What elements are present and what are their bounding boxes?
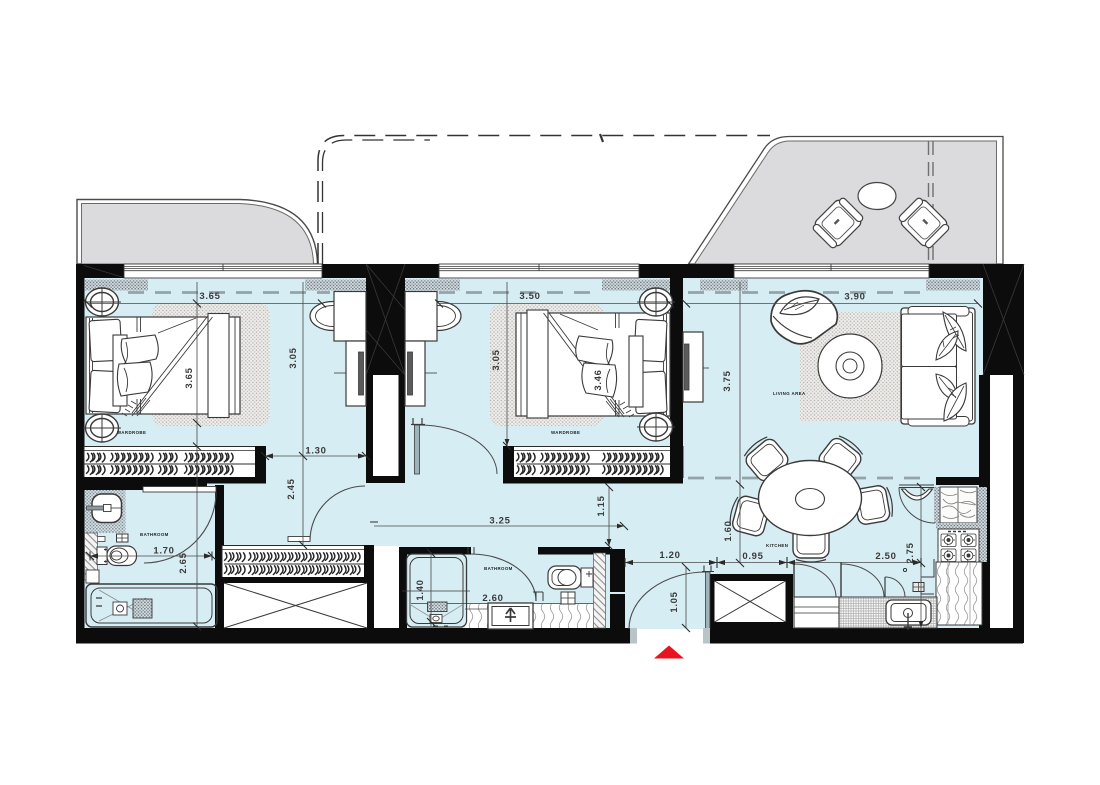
svg-text:1.05: 1.05 xyxy=(669,591,680,612)
svg-text:3.75: 3.75 xyxy=(722,370,733,391)
svg-text:1.30: 1.30 xyxy=(305,446,326,457)
svg-text:WARDROBE: WARDROBE xyxy=(117,430,146,435)
svg-text:BATHROOM: BATHROOM xyxy=(484,566,513,571)
svg-text:2.75: 2.75 xyxy=(905,542,916,563)
svg-text:BATHROOM: BATHROOM xyxy=(140,532,169,537)
svg-text:3.50: 3.50 xyxy=(519,291,540,302)
svg-text:0.95: 0.95 xyxy=(742,551,763,562)
svg-text:3.05: 3.05 xyxy=(491,349,502,370)
svg-text:1.60: 1.60 xyxy=(723,520,734,541)
svg-text:WARDROBE: WARDROBE xyxy=(551,430,580,435)
svg-text:3.25: 3.25 xyxy=(489,516,510,527)
svg-text:1.20: 1.20 xyxy=(659,550,680,561)
svg-text:3.05: 3.05 xyxy=(288,347,299,368)
svg-text:1.70: 1.70 xyxy=(153,546,174,557)
svg-text:3.46: 3.46 xyxy=(593,369,604,390)
svg-text:2.45: 2.45 xyxy=(286,478,297,499)
svg-text:2.65: 2.65 xyxy=(178,552,189,573)
svg-text:KITCHEN: KITCHEN xyxy=(766,543,788,548)
svg-text:1.40: 1.40 xyxy=(415,579,426,600)
svg-text:3.90: 3.90 xyxy=(844,292,865,303)
svg-text:2.50: 2.50 xyxy=(875,551,896,562)
svg-text:3.65: 3.65 xyxy=(199,291,220,302)
svg-text:2.60: 2.60 xyxy=(482,593,503,604)
svg-text:3.65: 3.65 xyxy=(184,367,195,388)
svg-text:1.15: 1.15 xyxy=(596,495,607,516)
svg-text:LIVING AREA: LIVING AREA xyxy=(773,391,806,396)
